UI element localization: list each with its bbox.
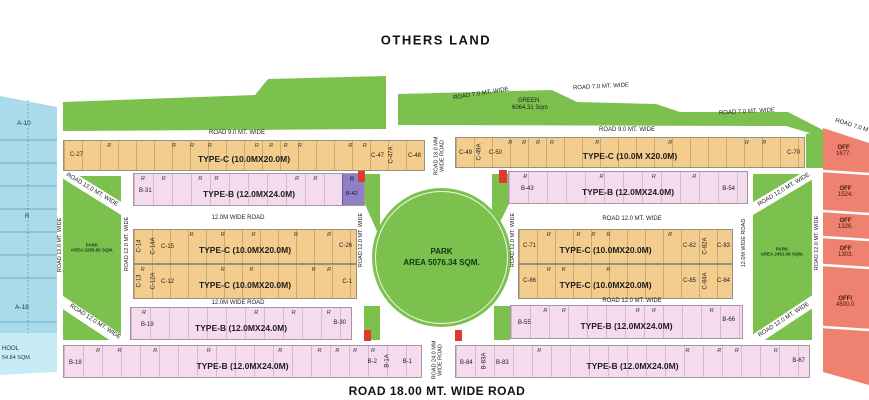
plot-a18-label: A-18: [15, 304, 29, 311]
road-12-label: 12.0M WIDE ROAD: [211, 215, 264, 221]
others-land-label: OTHERS LAND: [381, 33, 491, 48]
green-label: GREEN: [518, 98, 539, 104]
park-area: AREA 5076.34 SQM.: [403, 258, 479, 268]
row-type-label: TYPE-B (12.0MX24.0M): [509, 187, 747, 197]
r-mark: R: [562, 308, 566, 314]
r-mark: R: [284, 143, 288, 149]
r-mark: R: [547, 232, 551, 238]
row-type-c-mid-left-b: C-13 C-12A C-12 RRRRR TYPE-C (10.0MX20.0…: [133, 264, 357, 299]
mini-park-left: PARK AREA 2285.85 SQM.: [71, 243, 114, 254]
r-mark: R: [208, 143, 212, 149]
r-mark: R: [198, 176, 202, 182]
red-marker: [499, 170, 507, 183]
red-marker: [364, 330, 371, 341]
r-mark: R: [255, 143, 259, 149]
r-mark: R: [774, 348, 778, 354]
row-type-label: TYPE-B (12.0MX24.0M): [131, 323, 351, 333]
r-mark: R: [717, 348, 721, 354]
r-mark: R: [335, 348, 339, 354]
r-mark: R: [327, 232, 331, 238]
r-mark: R: [550, 140, 554, 146]
office-plot: OFFI 4500.0: [836, 296, 854, 308]
r-mark: R: [142, 310, 146, 316]
row-type-c-top-left: C-27 RRRRRRRRRR TYPE-C (10.0MX20.0M) C-4…: [63, 140, 425, 171]
road-18-line2: WIDE ROAD: [440, 137, 446, 176]
plot-label: C-26: [339, 243, 352, 249]
r-mark: R: [591, 232, 595, 238]
road-12-label: ROAD 12.0 MT. WIDE: [602, 216, 661, 222]
road-12-vertical-label: ROAD 12.0 MT. WIDE: [57, 218, 63, 272]
r-mark: R: [762, 140, 766, 146]
r-mark: R: [298, 143, 302, 149]
r-mark: R: [118, 348, 122, 354]
plot-label: C-47A: [388, 146, 394, 163]
r-mark: R: [353, 348, 357, 354]
r-mark: R: [327, 267, 331, 273]
plot-label: C-83: [717, 243, 730, 249]
r-mark: R: [313, 176, 317, 182]
r-mark: R: [141, 267, 145, 273]
r-mark: R: [25, 214, 29, 220]
plot-label: C-84A: [702, 272, 708, 289]
r-mark: R: [636, 308, 640, 314]
r-mark: R: [652, 174, 656, 180]
r-mark: R: [96, 348, 100, 354]
row-type-label: TYPE-B (12.0MX24.0M): [134, 189, 364, 199]
r-mark: R: [606, 267, 610, 273]
row-type-b-lower-right: RRRRR B-55 TYPE-B (12.0MX24.0M) B-66: [510, 305, 743, 339]
row-type-c-mid-right-a: C-71 RRRRR TYPE-C (10.0MX20.0M) C-82 C-8…: [518, 229, 733, 264]
r-mark: R: [562, 267, 566, 273]
r-mark: R: [252, 232, 256, 238]
r-mark: R: [292, 310, 296, 316]
plot-label: C-84: [717, 278, 730, 284]
road-12-vertical-label: ROAD 12.0 MT. WIDE: [124, 217, 130, 271]
road-12-label: ROAD 12.0 MT. WIDE: [602, 298, 661, 304]
row-type-b-bottom-right: B-84 B-83A B-83 RRRRR TYPE-B (12.0MX24.0…: [455, 345, 810, 378]
road-24-vertical-label: ROAD 24.0 MM WIDE ROAD: [432, 341, 445, 380]
r-mark: R: [685, 348, 689, 354]
row-type-label: TYPE-C (10.0MX20.0M): [134, 245, 356, 255]
r-mark: R: [735, 348, 739, 354]
plot-label: B-1A: [384, 354, 390, 367]
r-mark: R: [215, 176, 219, 182]
row-type-label: TYPE-B (12.0MX24.0M): [511, 321, 742, 331]
row-type-c-top-right: C-49 C-49A C-50 RRRRRRRR TYPE-C (10.0M X…: [455, 137, 805, 168]
r-mark: R: [312, 267, 316, 273]
office-plot: OFF 1303.: [838, 246, 853, 258]
row-type-label: TYPE-C (10.0MX20.0M): [134, 280, 356, 290]
r-mark: R: [221, 267, 225, 273]
plot-label: B-30: [333, 320, 346, 326]
row-type-label: TYPE-B (12.0MX24.0M): [456, 361, 809, 371]
r-mark: R: [668, 232, 672, 238]
office-plot: OFF 1677.: [836, 145, 851, 157]
mini-park-right: PARK AREA 2451.08 SQM.: [761, 247, 804, 258]
r-mark: R: [692, 174, 696, 180]
plot-label: B-1: [403, 359, 412, 365]
r-mark: R: [508, 140, 512, 146]
mini-park-area: AREA 2451.08 SQM.: [761, 252, 804, 257]
r-mark: R: [190, 143, 194, 149]
r-mark: R: [745, 140, 749, 146]
r-mark: R: [207, 348, 211, 354]
plot-label: C-1: [342, 279, 352, 285]
row-type-b-lower-left: RRRR B-19 TYPE-B (12.0MX24.0M) B-30: [130, 307, 352, 340]
row-type-label: TYPE-C (10.0MX20.0M): [519, 245, 692, 255]
r-mark: R: [153, 348, 157, 354]
office-area: 1303.: [838, 252, 853, 258]
r-mark: R: [363, 143, 367, 149]
r-mark: R: [595, 140, 599, 146]
r-mark: R: [221, 232, 225, 238]
plot-a10-label: A-10: [17, 120, 31, 127]
row-type-b-upper-right: RRRR B-43 TYPE-B (12.0MX24.0M) B-54: [508, 171, 748, 204]
plot-label: C-47: [371, 153, 384, 159]
r-mark: R: [348, 143, 352, 149]
r-mark: R: [350, 177, 354, 183]
school-label: HOOL: [2, 346, 19, 352]
r-mark: R: [537, 348, 541, 354]
green-area-label: 6064.31 Sqm: [512, 105, 548, 111]
park-title: PARK: [430, 247, 452, 257]
r-mark: R: [547, 267, 551, 273]
office-area: 1326.: [838, 224, 853, 230]
road-12-label: 12.0M WIDE ROAD: [211, 300, 264, 306]
road-18-vertical-label: ROAD 18.0 MM WIDE ROAD: [434, 137, 447, 176]
r-mark: R: [141, 176, 145, 182]
r-mark: R: [190, 232, 194, 238]
r-mark: R: [172, 143, 176, 149]
plot-label: C-48: [408, 153, 421, 159]
row-type-label: TYPE-C (10.0MX20.0M): [519, 280, 692, 290]
site-plan: OTHERS LAND ROAD 18.00 MT. WIDE ROAD GRE…: [0, 0, 869, 400]
road-12-vertical-label: ROAD 12.0 MT. WIDE: [814, 216, 820, 270]
row-type-b-upper-left: RRRRRR B-31 TYPE-B (12.0MX24.0M) R B-42: [133, 173, 365, 206]
r-mark: R: [543, 308, 547, 314]
row-type-c-mid-right-b: C-86 RRR TYPE-C (10.0MX20.0M) C-85 C-84A…: [518, 264, 733, 299]
r-mark: R: [327, 310, 331, 316]
road-9-label: ROAD 9.0 MT. WIDE: [209, 130, 265, 136]
row-type-c-mid-left-a: C-14 C-14A C-15 RRRRR TYPE-C (10.0MX20.0…: [133, 229, 357, 264]
office-area: 4500.0: [836, 302, 854, 308]
r-mark: R: [523, 174, 527, 180]
r-mark: R: [599, 174, 603, 180]
school-area-label: 54.84 SQM.: [2, 355, 31, 361]
r-mark: R: [295, 176, 299, 182]
r-mark: R: [162, 176, 166, 182]
plot-label: C-85: [683, 278, 696, 284]
r-mark: R: [522, 140, 526, 146]
office-plot: OFF 1524.: [838, 186, 853, 198]
road-12-vertical-label: ROAD 12.0 MT. WIDE: [510, 213, 516, 267]
mini-park-area: AREA 2285.85 SQM.: [71, 248, 114, 253]
office-plot: OFF 1326.: [838, 218, 853, 230]
r-mark: R: [536, 140, 540, 146]
road-9-label: ROAD 9.0 MT. WIDE: [599, 127, 655, 133]
r-mark: R: [606, 232, 610, 238]
plot-label: B-2: [368, 359, 377, 365]
r-mark: R: [294, 232, 298, 238]
office-area: 1524.: [838, 192, 853, 198]
row-type-label: TYPE-C (10.0M X20.0M): [456, 151, 804, 161]
road-24-line2: WIDE ROAD: [438, 341, 444, 380]
plot-label: C-82A: [702, 237, 708, 254]
road-12-vertical-label: 12.0M WIDE ROAD: [741, 219, 747, 268]
plot-label: C-82: [683, 243, 696, 249]
r-mark: R: [710, 308, 714, 314]
row-type-b-bottom-left: RRRRRRRRR B-18 TYPE-B (12.0MX24.0M) B-2 …: [63, 345, 422, 378]
r-mark: R: [269, 143, 273, 149]
r-mark: R: [652, 308, 656, 314]
office-area: 1677.: [836, 151, 851, 157]
r-mark: R: [371, 348, 375, 354]
r-mark: R: [317, 348, 321, 354]
plot-label: C-70: [787, 150, 800, 156]
bottom-road-label: ROAD 18.00 MT. WIDE ROAD: [349, 384, 526, 398]
road-12-vertical-label: ROAD 12.0 MT. WIDE: [358, 213, 364, 267]
r-mark: R: [668, 140, 672, 146]
r-mark: R: [107, 143, 111, 149]
r-mark: R: [577, 232, 581, 238]
plot-label: B-42: [346, 191, 358, 197]
plot-label: B-67: [792, 358, 805, 364]
plot-label: B-66: [722, 317, 735, 323]
plot-label: B-54: [722, 186, 735, 192]
red-marker: [455, 330, 462, 341]
r-mark: R: [249, 267, 253, 273]
r-mark: R: [254, 310, 258, 316]
central-park: PARK AREA 5076.34 SQM.: [372, 188, 511, 327]
red-marker: [358, 171, 365, 182]
r-mark: R: [278, 348, 282, 354]
